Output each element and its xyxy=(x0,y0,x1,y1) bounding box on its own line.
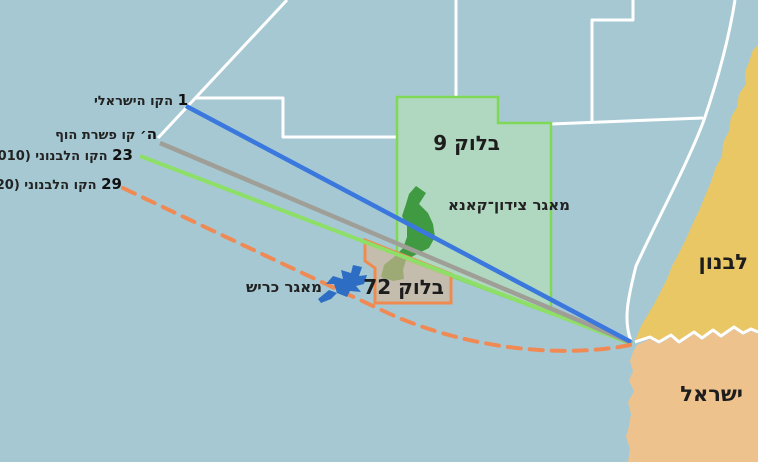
line-1-text: הקו הישראלי xyxy=(94,94,173,109)
line-hof-text: קו פשרת הוף xyxy=(55,128,135,143)
maritime-border-map: 1 הקו הישראלי ה׳ קו פשרת הוף 23 הקו הלבנ… xyxy=(0,0,758,462)
line-23-text: הקו הלבנוני (2010) xyxy=(0,149,108,164)
label-block-9: בלוק 9 xyxy=(433,132,500,154)
label-line-1-israeli: 1 הקו הישראלי xyxy=(94,92,188,109)
line-hof-number: ה׳ xyxy=(140,125,157,143)
label-line-29: 29 הקו הלבנוני (2020) xyxy=(0,176,122,193)
line-29-number: 29 xyxy=(101,175,122,193)
line-29-text: הקו הלבנוני (2020) xyxy=(0,178,97,193)
line-1-number: 1 xyxy=(178,91,188,109)
label-karish-field: מאגר כריש xyxy=(246,279,322,296)
label-country-lebanon: לבנון xyxy=(699,251,748,274)
label-line-hof: ה׳ קו פשרת הוף xyxy=(55,126,157,143)
label-qana-field: מאגר צידון־קאנא xyxy=(448,197,570,214)
map-canvas xyxy=(0,0,758,462)
label-country-israel: ישראל xyxy=(680,383,743,406)
line-23-number: 23 xyxy=(112,146,133,164)
label-line-23: 23 הקו הלבנוני (2010) xyxy=(0,147,133,164)
label-block-72: בלוק 72 xyxy=(363,276,444,298)
